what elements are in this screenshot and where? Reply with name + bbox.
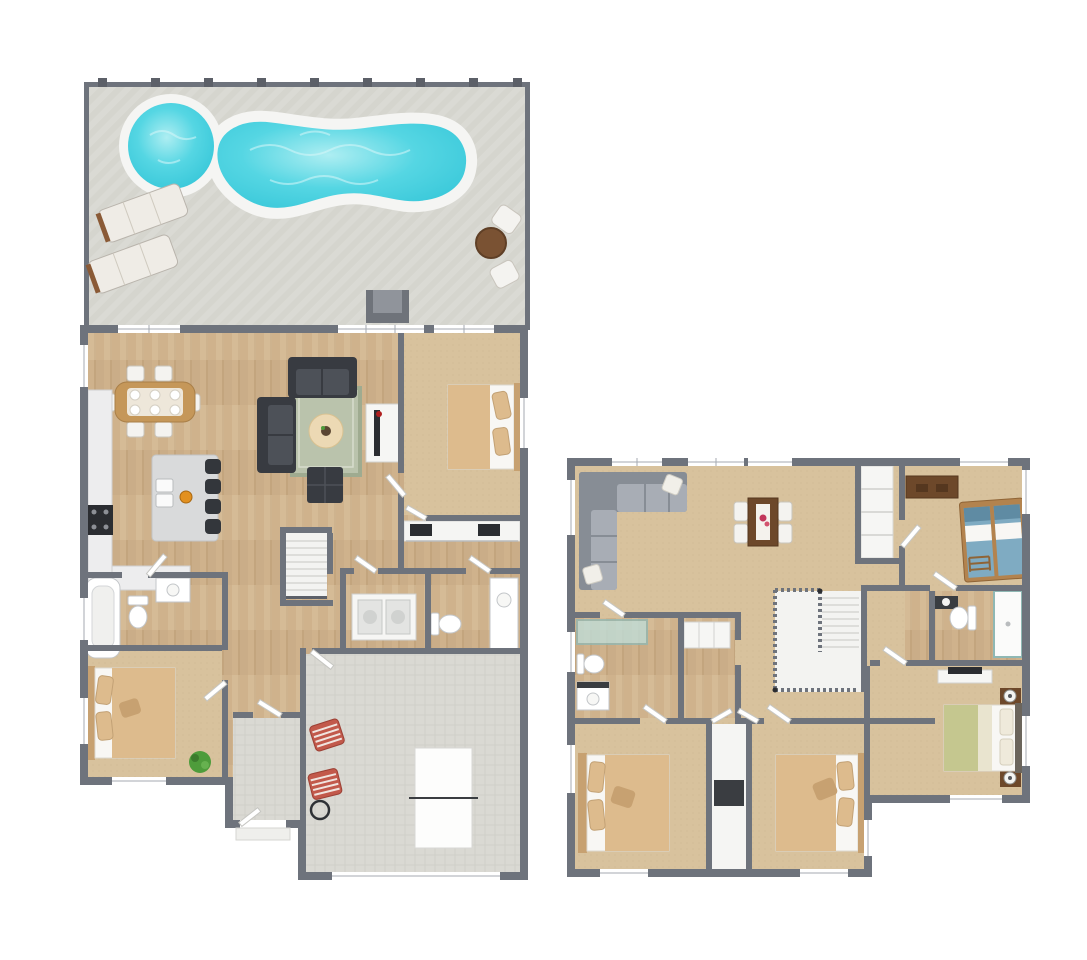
bed-sheet [995,522,1022,540]
patio-wall-right [525,82,530,330]
powder-toilet [431,613,461,635]
desk-drawer [936,484,948,492]
master-pillow [1000,739,1013,765]
loveseat [257,397,296,473]
flowers [765,522,770,527]
bed-pillow [96,711,114,740]
bed-blanket [776,755,836,851]
toilet [128,596,148,628]
bed-pillow [994,504,1021,520]
patio-wall-left [84,82,89,330]
twin-beds [959,498,1028,582]
potted-plant [189,751,211,773]
closet-bin [478,524,500,536]
closet-cabinet [714,780,744,806]
bed-pillow [587,799,605,830]
left-bedroom [578,753,669,853]
counter-run [88,390,112,590]
left-shower [577,620,647,644]
wardrobe [684,622,730,648]
bed-pillow [837,761,855,790]
outdoor-armchair [366,290,409,323]
left-sink [587,693,599,705]
bed-pillow [587,761,605,792]
newel-post [773,688,778,693]
lamp-finial [1008,694,1012,698]
bed-blanket [448,385,490,469]
spa-water [128,103,214,189]
red-vase [376,411,382,417]
left-toilet [577,654,604,674]
patio-table [476,228,506,258]
bed-pillow [964,506,991,522]
tv [948,667,982,674]
powder-vanity [490,578,518,650]
vanity-counter [577,682,609,688]
master-blanket-cream [978,705,992,771]
lamp-finial [1008,776,1012,780]
second-floor-plan [567,458,1030,877]
front-porch [236,828,290,840]
laundry [352,594,416,640]
bed-pillow [95,675,114,705]
closet-bin [410,524,432,536]
master-headboard [1015,703,1022,773]
sofa [288,357,357,398]
floor-plan-canvas [0,0,1087,960]
desk-drawer [916,484,928,492]
bed-pillow [837,797,855,826]
bed-sheet [965,524,992,542]
bathtub-basin [92,586,114,648]
centerpiece-leaf [321,426,325,430]
desk [906,476,958,498]
plant-leaf [201,761,209,769]
headboard [578,753,587,853]
patio-wall-top [84,82,530,87]
pool-patio [84,78,530,330]
staircase [286,533,327,599]
middle-bedroom [776,753,866,853]
pool-rim [212,116,472,213]
master-blanket-sage [944,705,978,771]
entry-floor [233,718,300,820]
range [87,505,113,535]
bed-pillow [492,427,511,456]
plant-leaf [191,754,199,762]
vanity-sink [167,584,179,596]
first-floor-plan [80,325,528,880]
shower-drain [1006,622,1011,627]
master-pillow [1000,709,1013,735]
washer-drum [363,610,377,624]
newel-post [818,589,823,594]
fruit-bowl [180,491,192,503]
dryer-drum [391,610,405,624]
garage-floor [306,654,520,872]
hall-sink [942,598,950,606]
flowers [760,515,767,522]
powder-sink [497,593,511,607]
stair-rail [286,596,327,599]
tv-console [366,404,400,462]
hall-toilet [950,606,976,630]
